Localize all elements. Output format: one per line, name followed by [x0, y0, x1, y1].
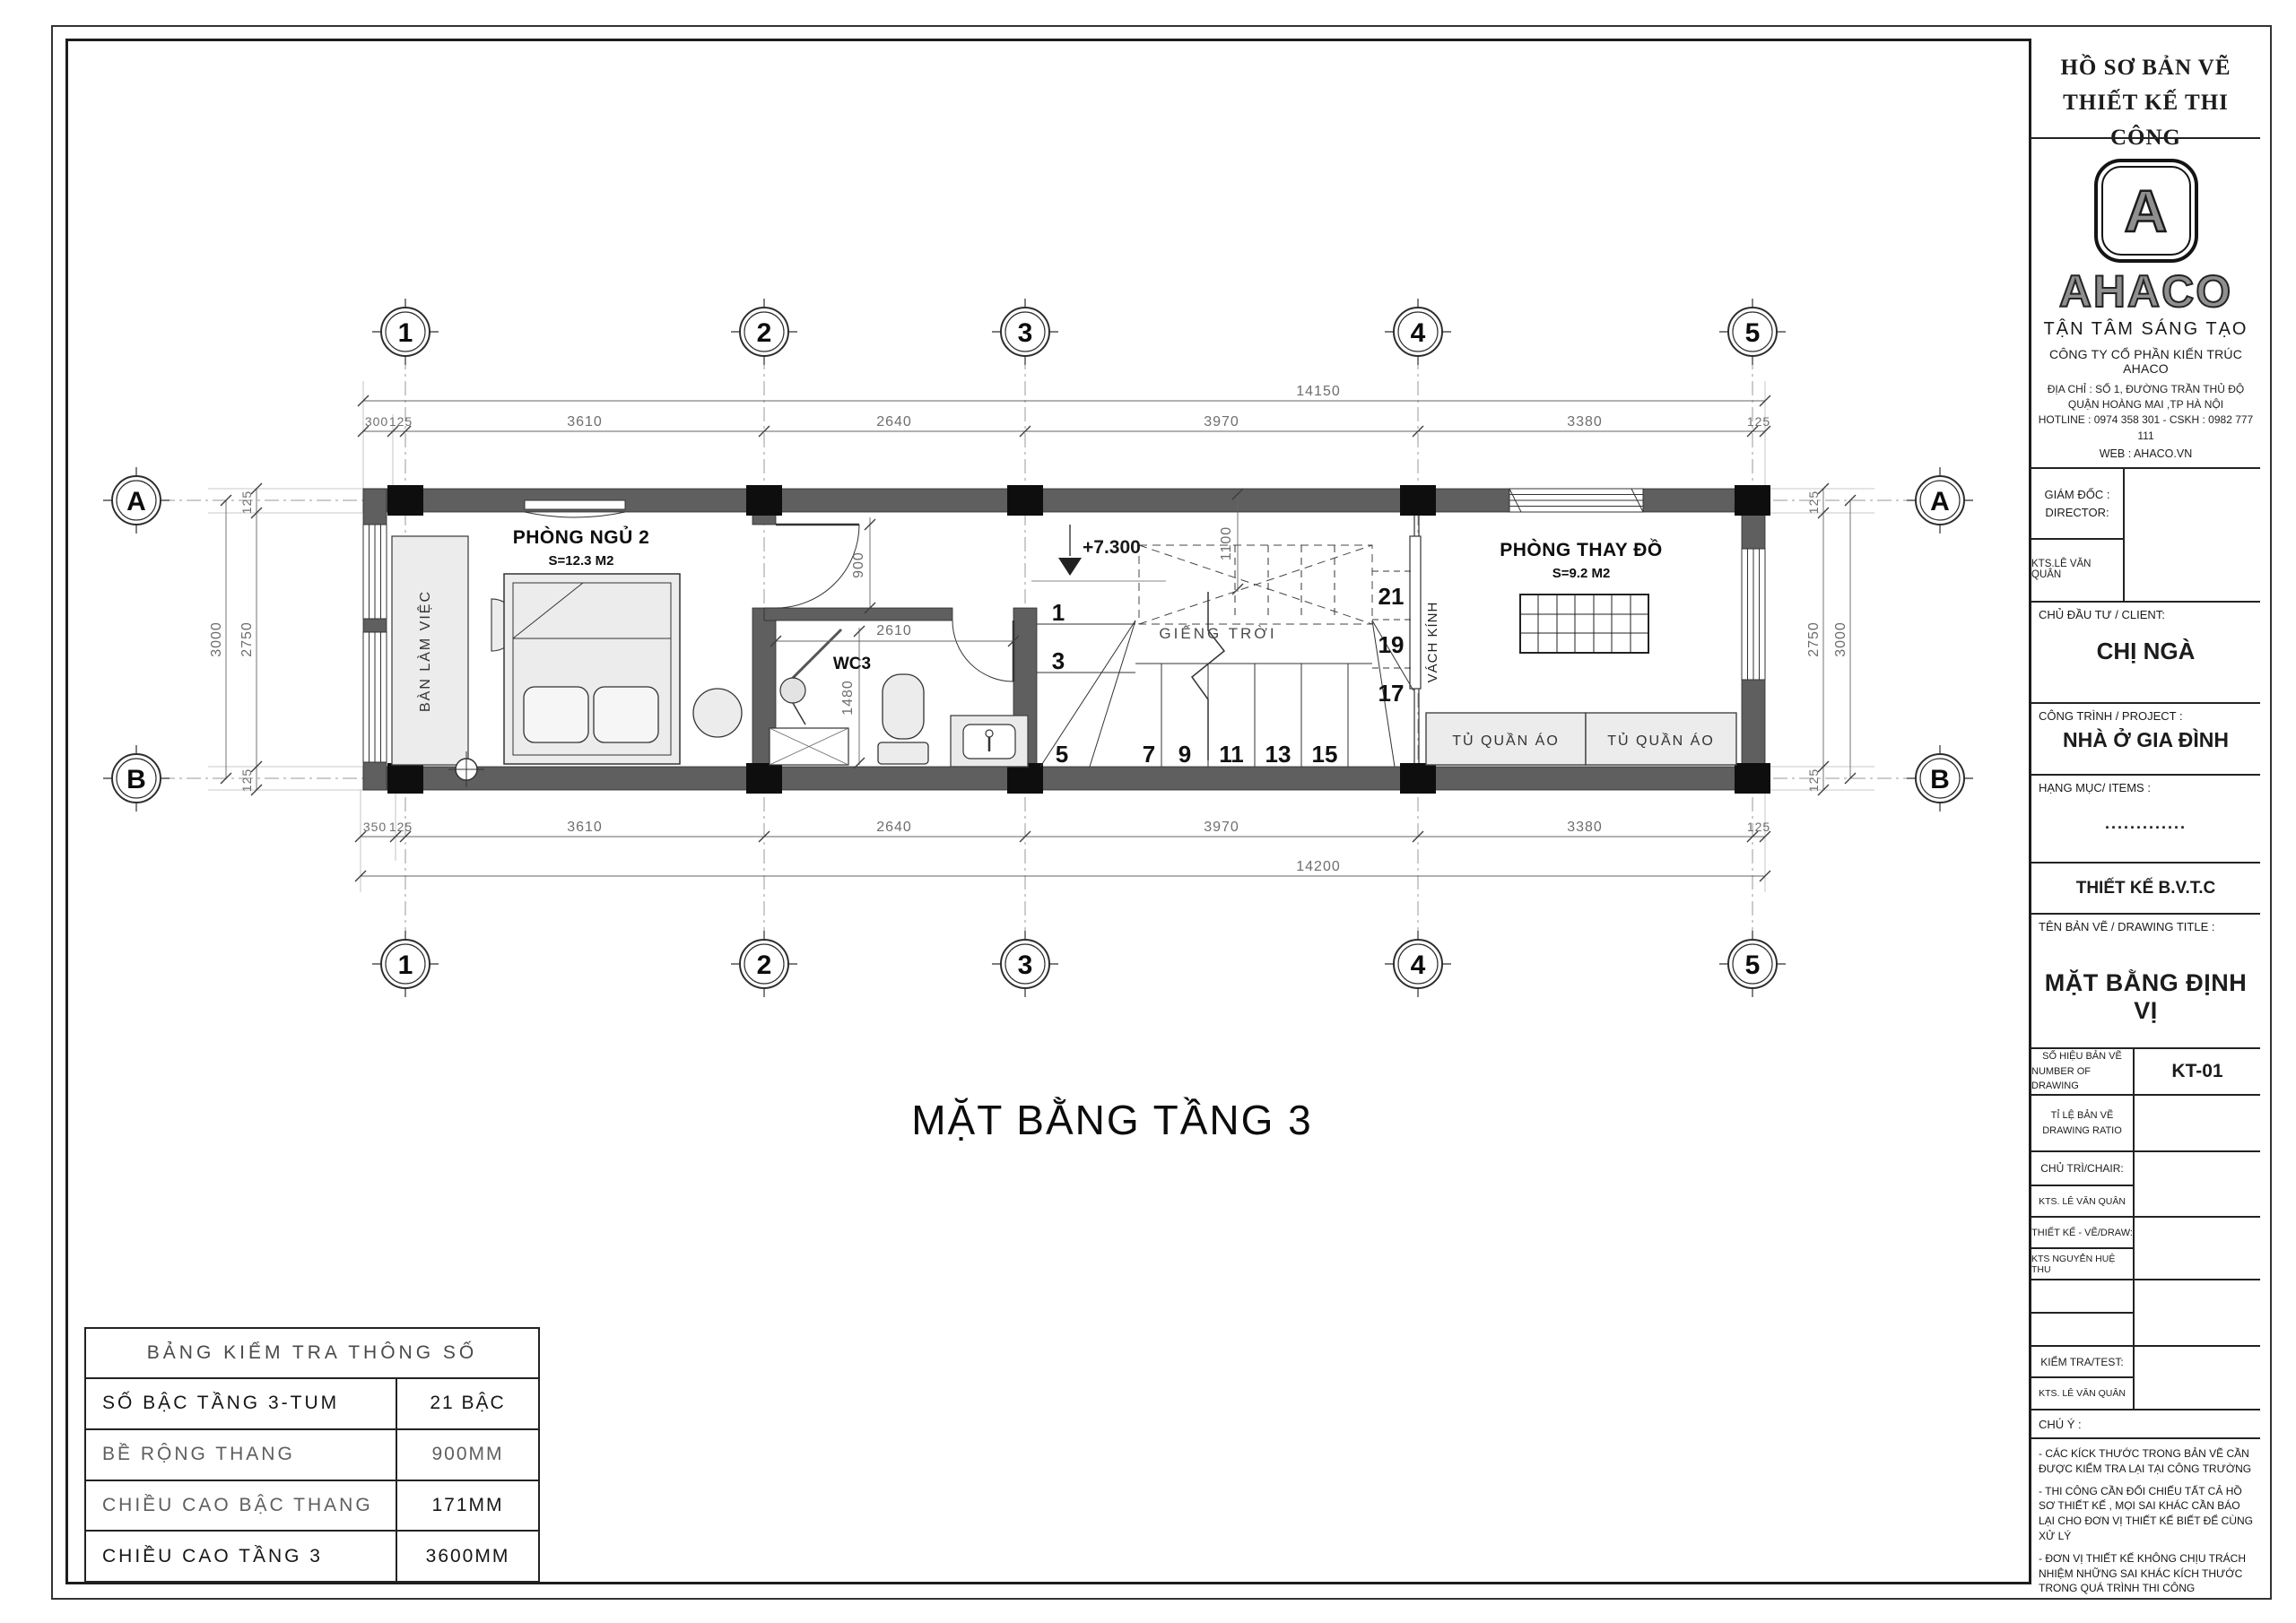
svg-text:11: 11: [1219, 741, 1244, 768]
test-block: KIỂM TRA/TEST: KTS. LÊ VĂN QUÂN: [2031, 1345, 2260, 1409]
director-label-en: DIRECTOR:: [2045, 504, 2109, 522]
svg-text:1: 1: [398, 318, 413, 348]
level-value: +7.300: [1083, 537, 1141, 558]
items-label: HẠNG MỤC/ ITEMS :: [2031, 776, 2260, 794]
brand-address1: ĐỊA CHỈ : SỐ 1, ĐƯỜNG TRẦN THỦ ĐỘ: [2031, 382, 2260, 397]
dim-door: 900: [851, 551, 866, 578]
dim-right-c: 125: [1806, 768, 1821, 792]
ratio-label-vi: TỈ LỆ BẢN VẼ: [2051, 1108, 2114, 1124]
check-table: BẢNG KIỂM TRA THÔNG SỐ SỐ BẬC TẦNG 3-TUM…: [84, 1327, 540, 1583]
svg-text:A: A: [1930, 487, 1950, 516]
director-label-vi: GIÁM ĐỐC :: [2045, 486, 2110, 504]
ahaco-logo-icon: A: [2094, 159, 2198, 263]
notes-block: - CÁC KÍCK THƯỚC TRONG BẢN VẼ CẦN ĐƯỢC K…: [2031, 1437, 2260, 1582]
note-2: - THI CÔNG CẦN ĐỐI CHIẾU TẤT CẢ HỒ SƠ TH…: [2039, 1484, 2253, 1544]
items-value: .............: [2031, 814, 2260, 833]
stairs: [1037, 545, 1413, 767]
row-label: CHIỀU CAO TẦNG 3: [86, 1532, 397, 1581]
dim-left-a: 125: [239, 490, 254, 514]
svg-text:7: 7: [1143, 741, 1155, 768]
dim-top-6: 125: [1747, 414, 1770, 429]
row-value: 171MM: [397, 1481, 538, 1531]
dim-top-total: 14150: [1296, 384, 1341, 399]
brand-name: AHACO: [2031, 268, 2260, 316]
dim-bot-total: 14200: [1296, 859, 1341, 874]
drawing-number: KT-01: [2135, 1049, 2260, 1094]
header-line1: HỒ SƠ BẢN VẼ: [2031, 51, 2260, 86]
project-block: CÔNG TRÌNH / PROJECT : NHÀ Ở GIA ĐÌNH: [2031, 702, 2260, 774]
number-label-vi: SỐ HIỆU BẢN VẼ: [2042, 1049, 2122, 1064]
row-label: CHIỀU CAO BẬC THANG: [86, 1481, 397, 1531]
dim-wc-d: 1480: [840, 680, 856, 716]
dressing-area: S=9.2 M2: [1552, 566, 1611, 581]
bedroom-area: S=12.3 M2: [549, 553, 614, 568]
dressing-label: PHÒNG THAY ĐỒ: [1500, 539, 1663, 560]
svg-text:A: A: [126, 487, 146, 516]
level-marker: +7.300: [1031, 525, 1166, 581]
dim-right-b: 2750: [1806, 621, 1822, 657]
check-table-title: BẢNG KIỂM TRA THÔNG SỐ: [86, 1329, 538, 1379]
dim-left-b: 2750: [239, 621, 255, 657]
number-label-en: NUMBER OF DRAWING: [2031, 1064, 2133, 1094]
plan-title: MẶT BẰNG TẦNG 3: [789, 1096, 1435, 1144]
dim-left-total: 3000: [209, 621, 224, 657]
svg-text:19: 19: [1378, 631, 1405, 658]
table-row: CHIỀU CAO TẦNG 3 3600MM: [86, 1532, 538, 1581]
doors: [776, 525, 1013, 683]
dim-bot-6: 125: [1747, 820, 1770, 834]
empty-block: [2031, 1279, 2260, 1345]
dim-bot-4: 3970: [1204, 820, 1239, 835]
brand-company: CÔNG TY CỔ PHẦN KIẾN TRÚC AHACO: [2031, 347, 2260, 376]
note-1: - CÁC KÍCK THƯỚC TRONG BẢN VẼ CẦN ĐƯỢC K…: [2039, 1446, 2253, 1477]
dim-top-3: 2640: [876, 414, 912, 430]
dim-bot-2: 3610: [567, 820, 603, 835]
dim-bot-5: 3380: [1567, 820, 1603, 835]
svg-text:2: 2: [757, 318, 772, 348]
wc-fixtures: [770, 674, 1028, 767]
svg-text:4: 4: [1411, 318, 1426, 348]
wc-label: WC3: [833, 655, 871, 673]
svg-text:13: 13: [1265, 741, 1291, 768]
bedroom-label: PHÒNG NGỦ 2: [513, 526, 650, 548]
test-name: KTS. LÊ VĂN QUÂN: [2031, 1378, 2133, 1409]
glass-partition-label: VÁCH KÍNH: [1425, 602, 1440, 683]
lightwell-label: GIẾNG TRỜI: [1159, 625, 1276, 642]
dim-right-a: 125: [1806, 490, 1821, 514]
dim-left-c: 125: [239, 768, 254, 792]
dim-lightwell: 1100: [1219, 526, 1234, 560]
ratio-label-en: DRAWING RATIO: [2042, 1124, 2122, 1139]
svg-text:3: 3: [1052, 647, 1065, 674]
svg-text:3: 3: [1018, 950, 1033, 980]
stair-numbers: 1 3 5 7 9 11 13 15 17 19 21: [1052, 583, 1405, 768]
title-block-header: HỒ SƠ BẢN VẼ THIẾT KẾ THI CÔNG: [2031, 39, 2260, 137]
draw-label: THIẾT KẾ - VẼ/DRAW:: [2031, 1218, 2133, 1249]
svg-text:4: 4: [1411, 950, 1426, 980]
table-row: CHIỀU CAO BẬC THANG 171MM: [86, 1481, 538, 1532]
svg-text:9: 9: [1178, 741, 1191, 768]
svg-text:15: 15: [1312, 741, 1338, 768]
dim-bot-1: 125: [389, 820, 413, 834]
client-label: CHỦ ĐẦU TƯ / CLIENT:: [2031, 603, 2260, 621]
row-value: 900MM: [397, 1430, 538, 1480]
client-block: CHỦ ĐẦU TƯ / CLIENT: CHỊ NGÀ: [2031, 601, 2260, 702]
director-name: KTS.LÊ VĂN QUÂN: [2031, 540, 2123, 599]
svg-text:3: 3: [1018, 318, 1033, 348]
draw-name: KTS NGUYỄN HUỆ THU: [2031, 1249, 2133, 1279]
row-value: 21 BẬC: [397, 1379, 538, 1428]
brand-slogan: TẬN TÂM SÁNG TẠO: [2031, 319, 2260, 340]
number-block: SỐ HIỆU BẢN VẼ NUMBER OF DRAWING KT-01: [2031, 1047, 2260, 1094]
table-row: SỐ BẬC TẦNG 3-TUM 21 BẬC: [86, 1379, 538, 1430]
design-stage: THIẾT KẾ B.V.T.C: [2031, 862, 2260, 913]
brand-hotline: HOTLINE : 0974 358 301 - CSKH : 0982 777…: [2031, 412, 2260, 444]
svg-text:B: B: [1930, 765, 1950, 794]
note-3: - ĐƠN VỊ THIẾT KẾ KHÔNG CHỊU TRÁCH NHIỆM…: [2039, 1551, 2253, 1596]
chair-label: CHỦ TRÌ/CHAIR:: [2031, 1152, 2133, 1186]
row-label: SỐ BẬC TẦNG 3-TUM: [86, 1379, 397, 1428]
drawing-title-label: TÊN BẢN VẼ / DRAWING TITLE :: [2031, 915, 2260, 933]
dim-top-0: 300: [365, 414, 388, 429]
svg-text:1: 1: [398, 950, 413, 980]
wardrobe-1-label: TỦ QUẦN ÁO: [1452, 732, 1560, 749]
row-label: BỀ RỘNG THANG: [86, 1430, 397, 1480]
svg-text:5: 5: [1056, 741, 1068, 768]
dim-top-5: 3380: [1567, 414, 1603, 430]
ratio-block: TỈ LỆ BẢN VẼ DRAWING RATIO: [2031, 1094, 2260, 1150]
wardrobe-2-label: TỦ QUẦN ÁO: [1607, 732, 1715, 749]
dim-top-2: 3610: [567, 414, 603, 430]
svg-text:5: 5: [1745, 950, 1761, 980]
note-label: CHÚ Ý :: [2031, 1409, 2260, 1437]
brand-block: A AHACO TẬN TÂM SÁNG TẠO CÔNG TY CỔ PHẦN…: [2031, 137, 2260, 467]
client-name: CHỊ NGÀ: [2031, 638, 2260, 665]
project-label: CÔNG TRÌNH / PROJECT :: [2031, 704, 2260, 723]
dim-bot-3: 2640: [876, 820, 912, 835]
dim-top-1: 125: [389, 414, 413, 429]
title-block: HỒ SƠ BẢN VẼ THIẾT KẾ THI CÔNG A AHACO T…: [2029, 39, 2260, 1584]
draw-block: THIẾT KẾ - VẼ/DRAW: KTS NGUYỄN HUỆ THU: [2031, 1216, 2260, 1279]
chair-name: KTS. LÊ VĂN QUÂN: [2031, 1186, 2133, 1216]
dim-bot-0: 350: [363, 820, 387, 834]
svg-text:17: 17: [1378, 680, 1405, 707]
items-block: HẠNG MỤC/ ITEMS : .............: [2031, 774, 2260, 862]
glass-partition: [1410, 516, 1421, 763]
drawing-title: MẶT BẰNG ĐỊNH VỊ: [2031, 969, 2260, 1025]
svg-text:B: B: [126, 765, 146, 794]
drawing-title-block: TÊN BẢN VẼ / DRAWING TITLE : MẶT BẰNG ĐỊ…: [2031, 913, 2260, 1047]
desk-label: BÀN LÀM VIỆC: [416, 590, 433, 712]
brand-web: WEB : AHACO.VN: [2031, 447, 2260, 460]
director-block: GIÁM ĐỐC : DIRECTOR: KTS.LÊ VĂN QUÂN: [2031, 467, 2260, 601]
dim-right-total: 3000: [1833, 621, 1848, 657]
dim-top-4: 3970: [1204, 414, 1239, 430]
test-label: KIỂM TRA/TEST:: [2031, 1347, 2133, 1378]
svg-text:21: 21: [1378, 583, 1405, 610]
table-row: BỀ RỘNG THANG 900MM: [86, 1430, 538, 1481]
brand-address2: QUẬN HOÀNG MAI ,TP HÀ NỘI: [2031, 397, 2260, 412]
svg-text:5: 5: [1745, 318, 1761, 348]
svg-text:1: 1: [1052, 599, 1065, 626]
dim-wc-w: 2610: [876, 623, 912, 638]
svg-text:2: 2: [757, 950, 772, 980]
project-name: NHÀ Ở GIA ĐÌNH: [2031, 728, 2260, 752]
chair-block: CHỦ TRÌ/CHAIR: KTS. LÊ VĂN QUÂN: [2031, 1150, 2260, 1216]
row-value: 3600MM: [397, 1532, 538, 1581]
logo-letter: A: [2125, 177, 2168, 245]
